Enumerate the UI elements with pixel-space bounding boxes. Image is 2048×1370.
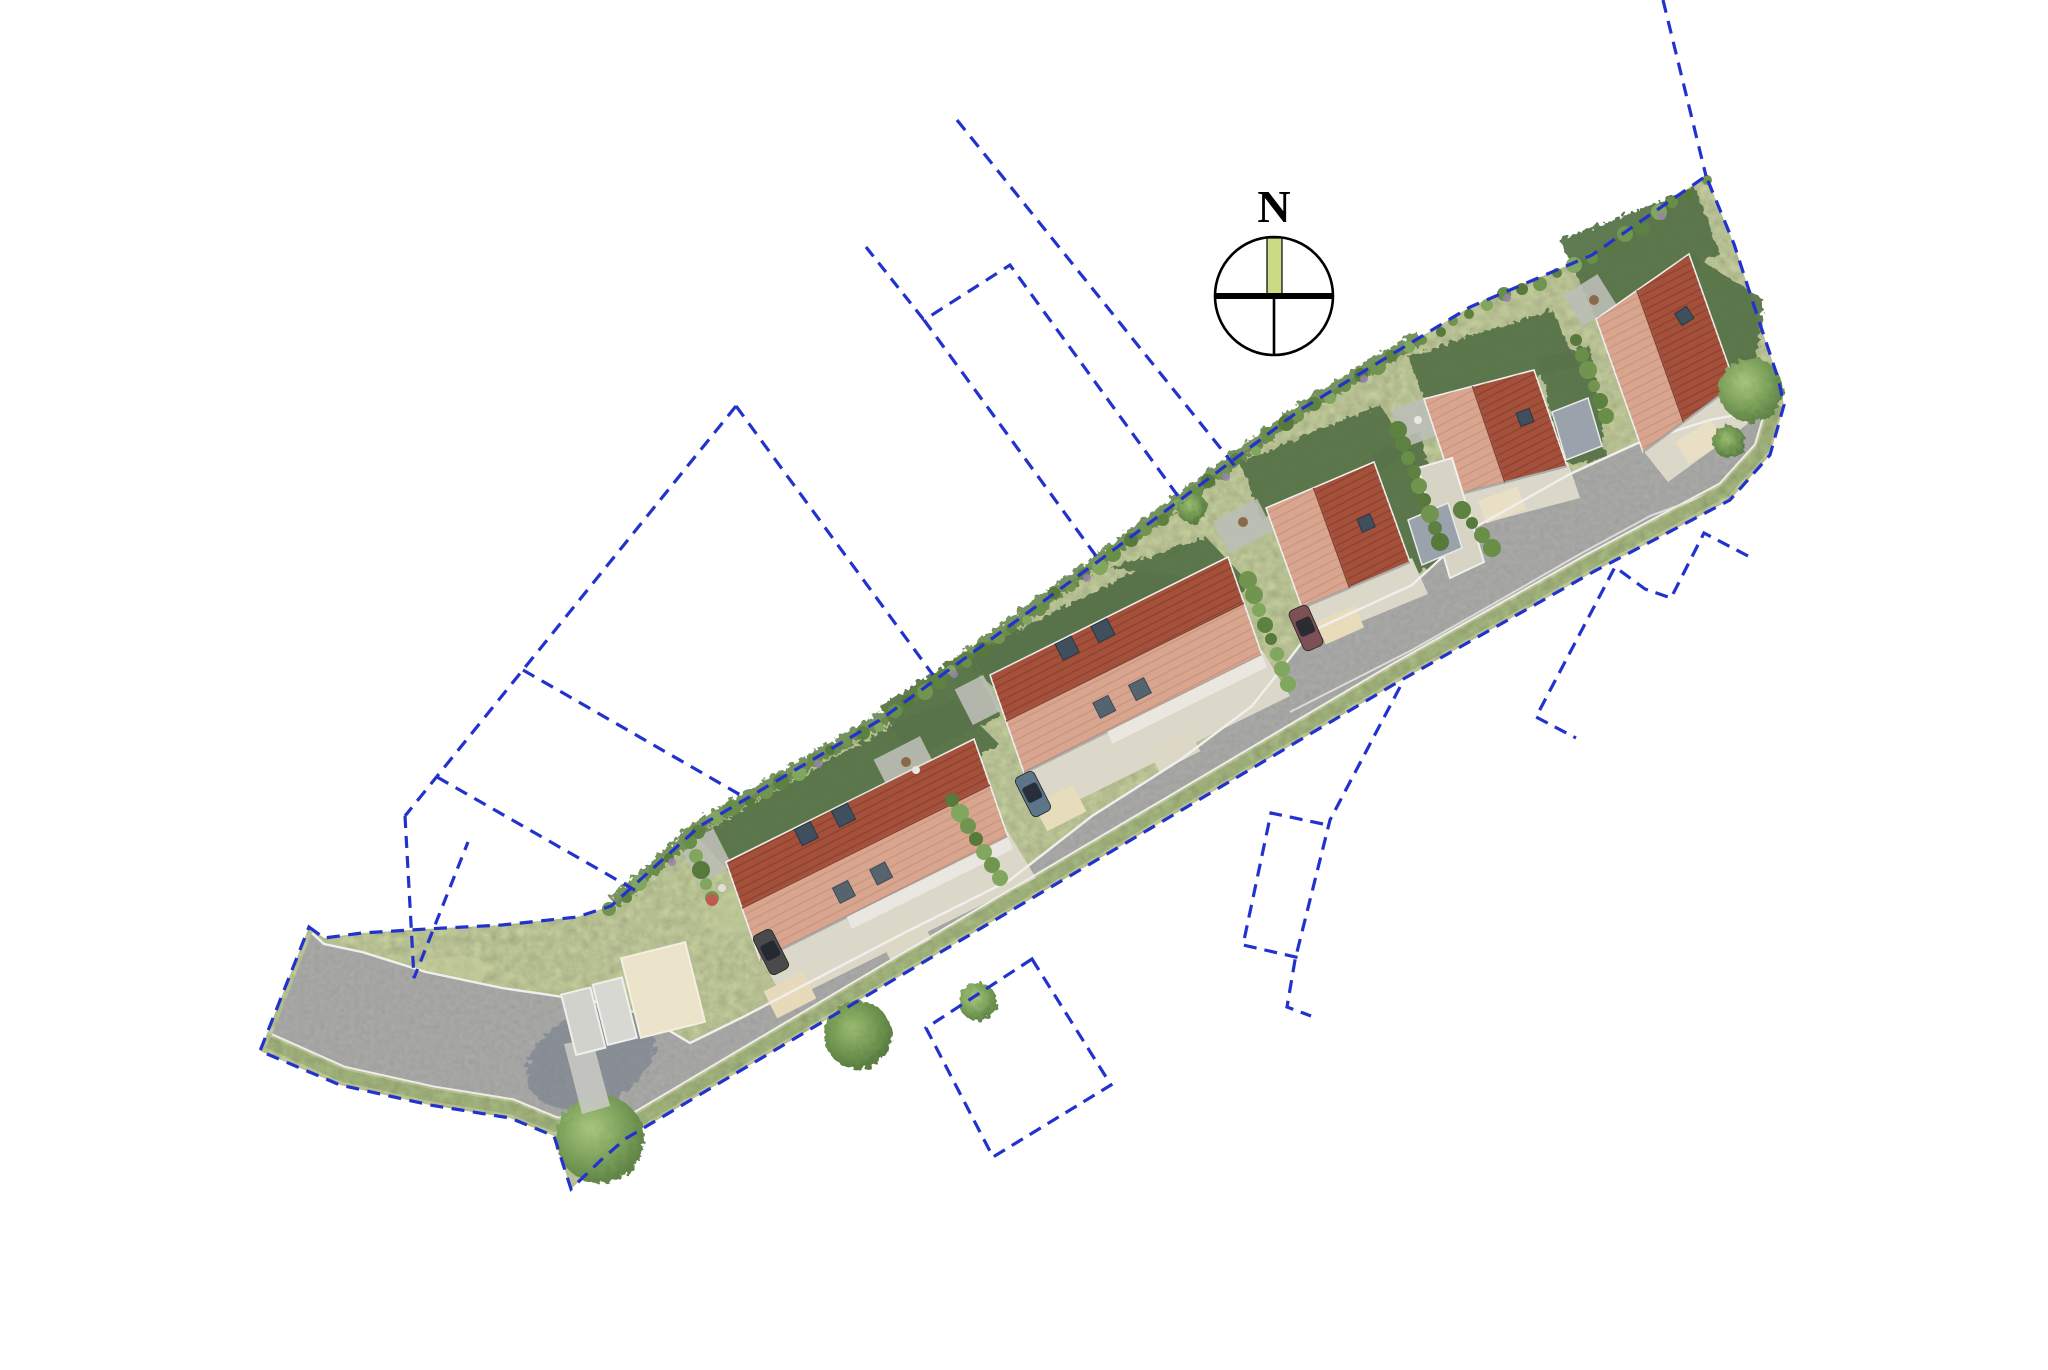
svg-text:N: N (1257, 181, 1290, 232)
